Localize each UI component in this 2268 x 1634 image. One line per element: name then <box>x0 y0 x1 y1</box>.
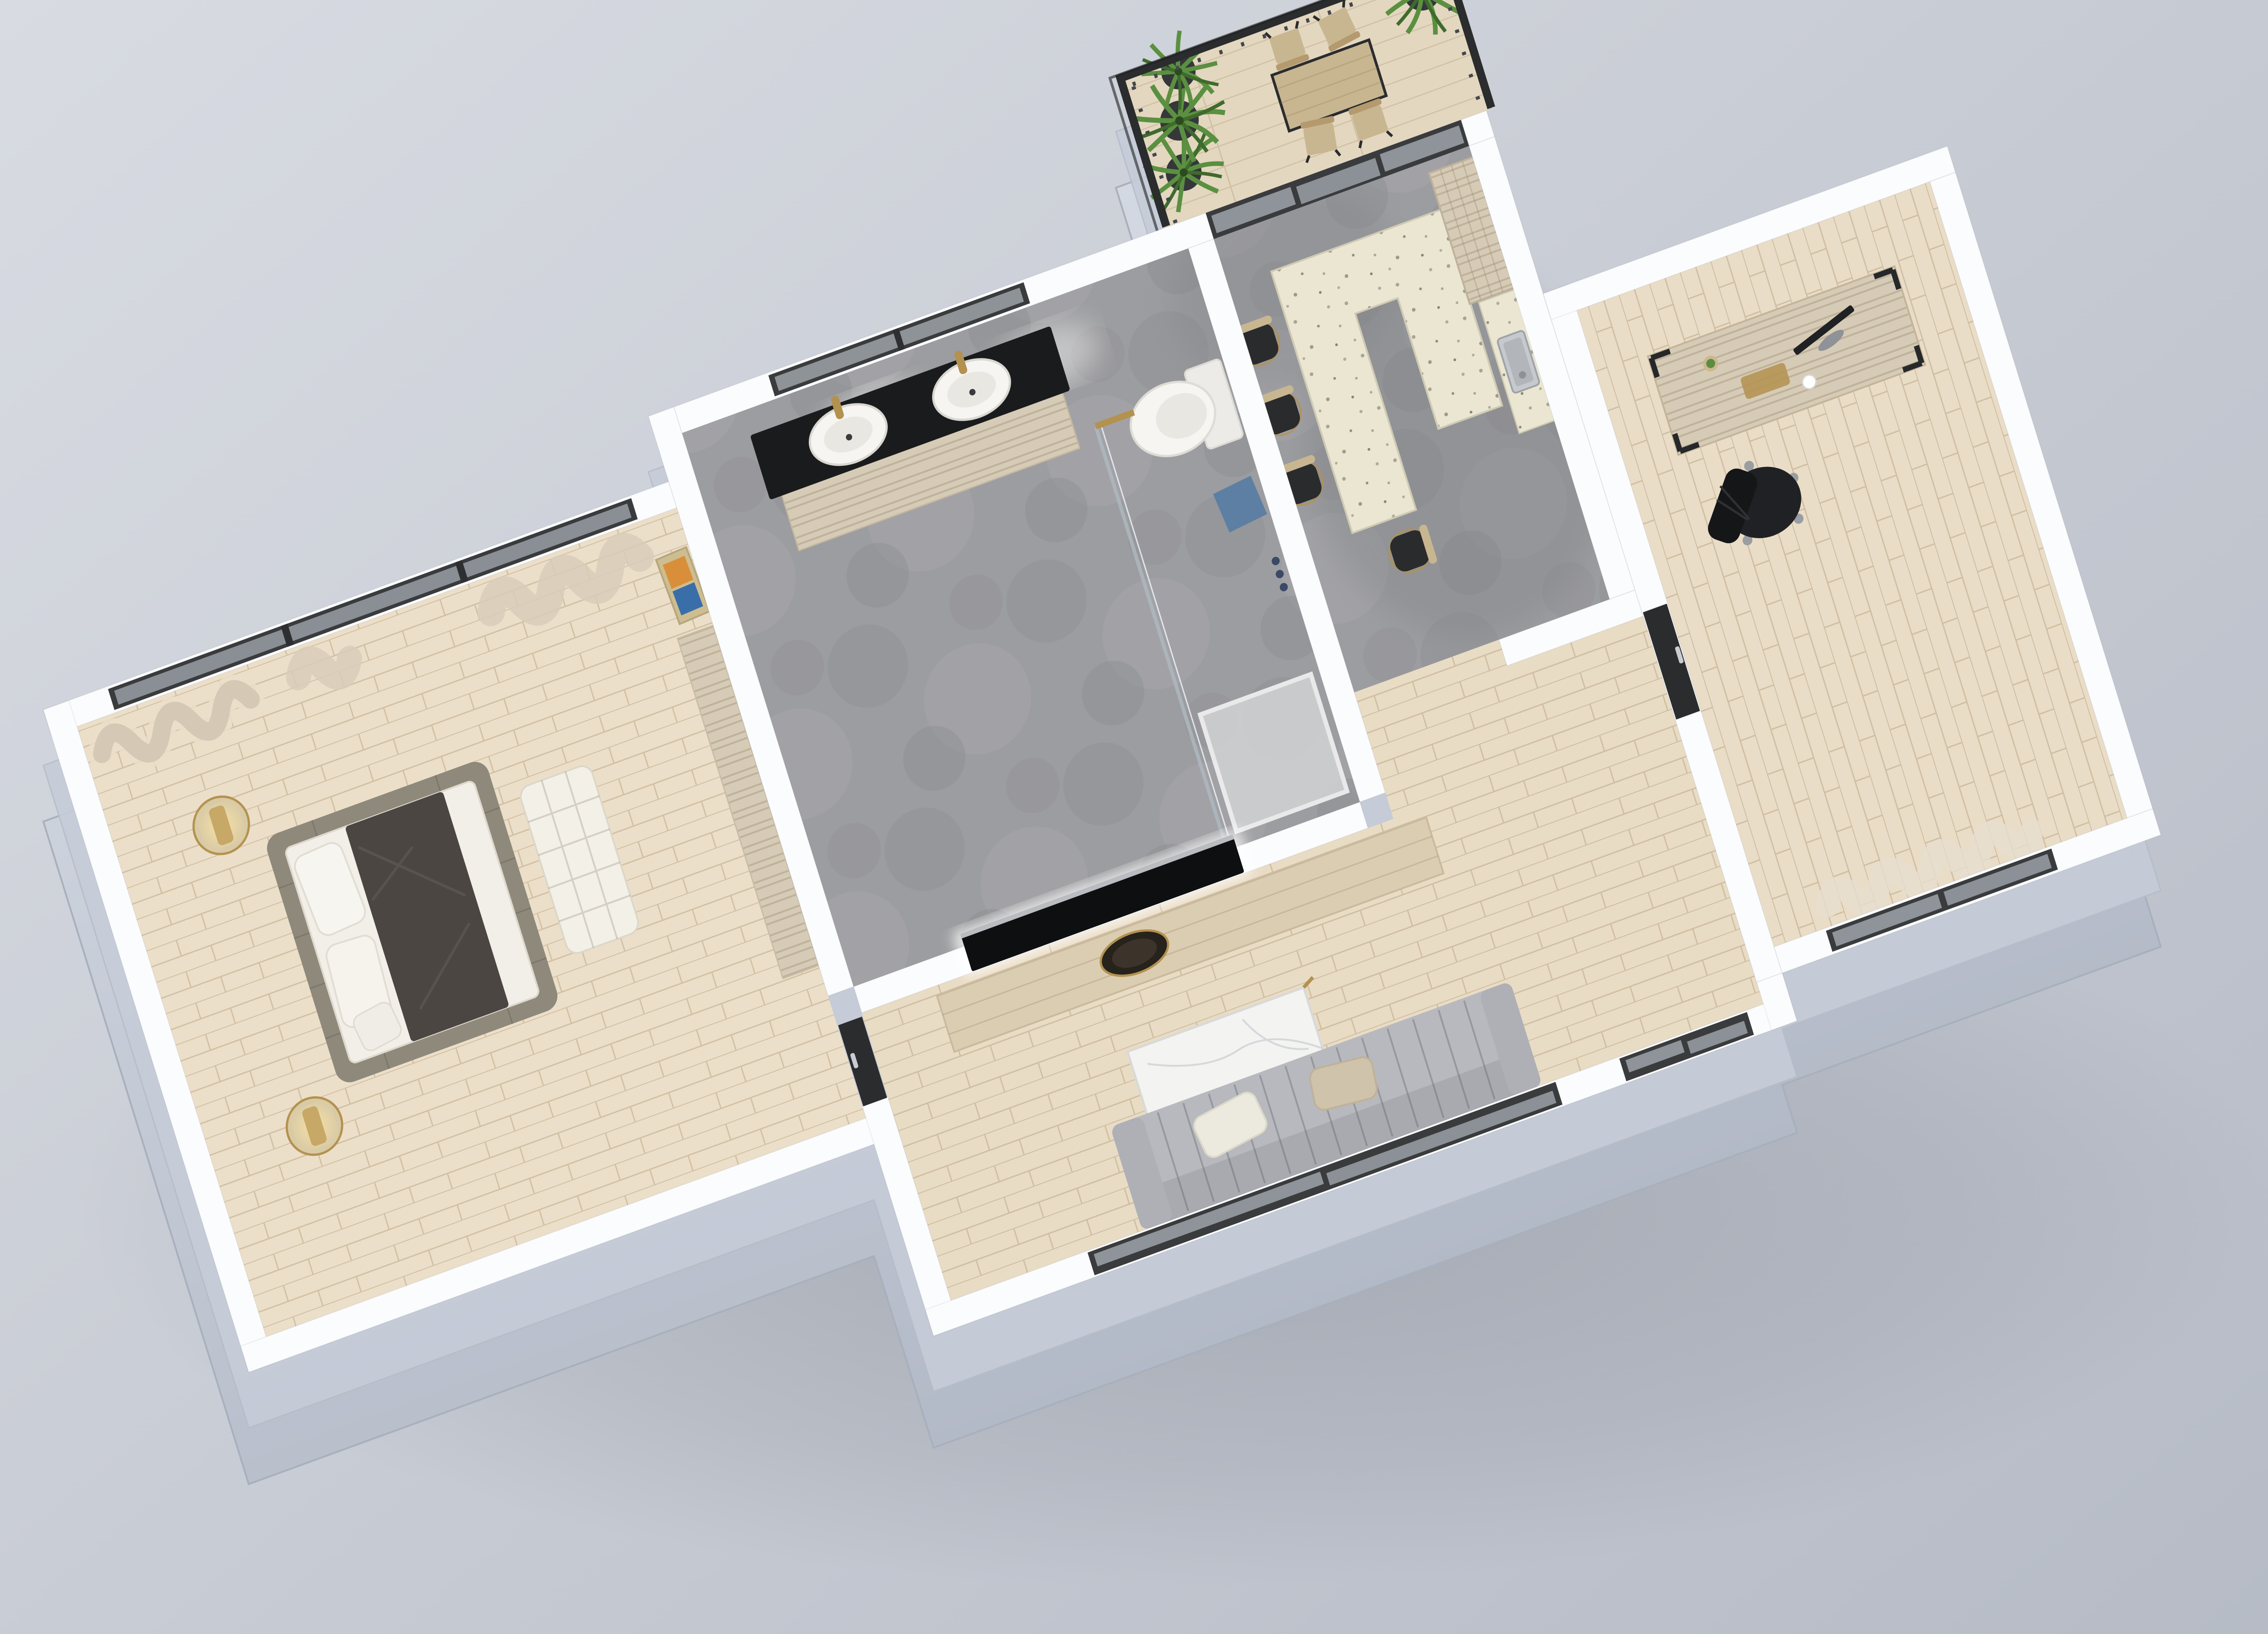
render-stage <box>0 0 2268 1634</box>
curtain-mid <box>294 646 354 691</box>
floor-plan-render <box>0 0 2268 1634</box>
